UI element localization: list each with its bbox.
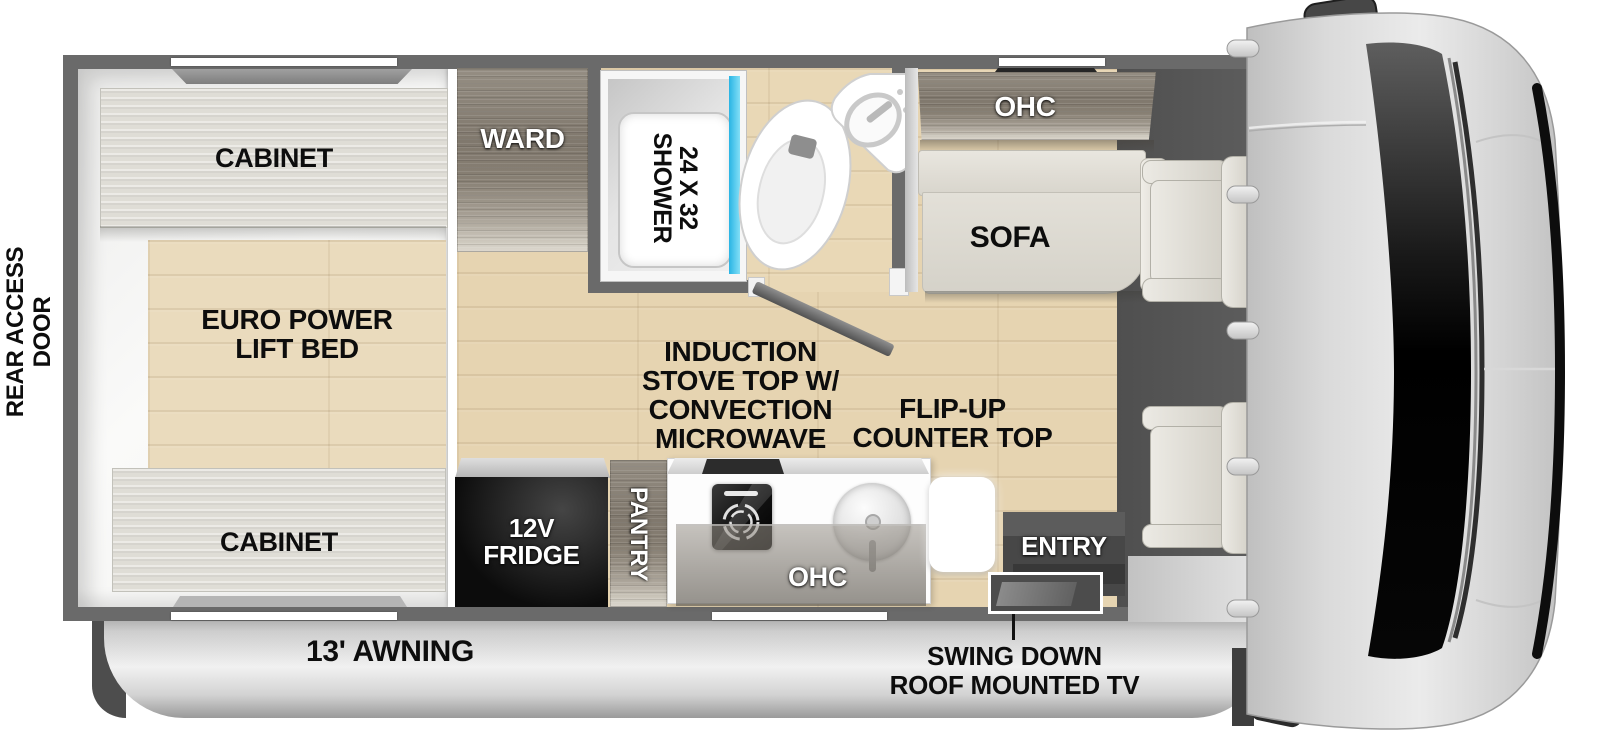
awning-label: 13' AWNING: [295, 636, 485, 668]
counter-note-line2: COUNTER TOP: [830, 423, 1075, 452]
stove-note-line2: STOVE TOP W/: [618, 366, 863, 395]
sofa-label: SOFA: [940, 222, 1080, 254]
rear-cabinet-bottom: CABINET: [112, 468, 446, 592]
fridge: 12V FRIDGE: [455, 477, 608, 607]
ohc-living-label: OHC: [955, 92, 1095, 121]
bed-label-line1: EURO POWER: [201, 305, 392, 334]
euro-power-lift-bed: EURO POWER LIFT BED: [148, 240, 446, 468]
wardrobe-label: WARD: [480, 124, 564, 153]
rear-cabinet-top: CABINET: [100, 88, 448, 228]
bed-label-line2: LIFT BED: [235, 334, 359, 363]
rear-access-door-line1: REAR ACCESS: [2, 232, 29, 432]
roof-vent-icon: [172, 69, 412, 84]
fridge-label-line1: 12V: [509, 515, 554, 542]
wall-left: [63, 55, 78, 621]
cab-front: [1100, 0, 1600, 743]
shower-label-line2: SHOWER: [649, 123, 675, 253]
stove-note-line4: MICROWAVE: [618, 424, 863, 453]
rear-access-door-line2: DOOR: [29, 232, 56, 432]
cabinet-bottom-label: CABINET: [220, 528, 338, 556]
stove-note-line1: INDUCTION: [618, 337, 863, 366]
tv-screen: [996, 582, 1077, 606]
shower-label-line1: 24 X 32: [675, 123, 701, 253]
counter-note-line1: FLIP-UP: [830, 394, 1075, 423]
rv-floorplan: 13' AWNING CABINET EURO POWER LIFT BED C…: [0, 0, 1600, 743]
wardrobe: WARD: [457, 68, 588, 252]
tv-callout-line: [1012, 614, 1015, 640]
window: [171, 58, 397, 66]
flip-up-counter: [929, 477, 995, 572]
roof-mounted-tv: [988, 572, 1103, 614]
counter-vent: [702, 459, 784, 474]
wall-gap-strip: [905, 68, 918, 292]
pantry-label: PANTRY: [625, 464, 651, 604]
window: [999, 58, 1105, 66]
fridge-label-line2: FRIDGE: [483, 542, 579, 569]
rear-access-door-label: REAR ACCESS DOOR: [2, 232, 58, 432]
cabinet-top-label: CABINET: [215, 144, 333, 172]
ohc-kitchen-label: OHC: [770, 563, 865, 591]
stove-note: INDUCTION STOVE TOP W/ CONVECTION MICROW…: [618, 337, 863, 453]
stove-note-line3: CONVECTION: [618, 395, 863, 424]
bathroom-fixtures: [730, 70, 920, 300]
window: [171, 612, 397, 620]
counter-note: FLIP-UP COUNTER TOP: [830, 394, 1075, 452]
window: [712, 612, 887, 620]
fridge-top-cap: [455, 458, 610, 478]
shower-label: 24 X 32 SHOWER: [645, 123, 701, 253]
slide-rail-icon: [173, 596, 407, 607]
